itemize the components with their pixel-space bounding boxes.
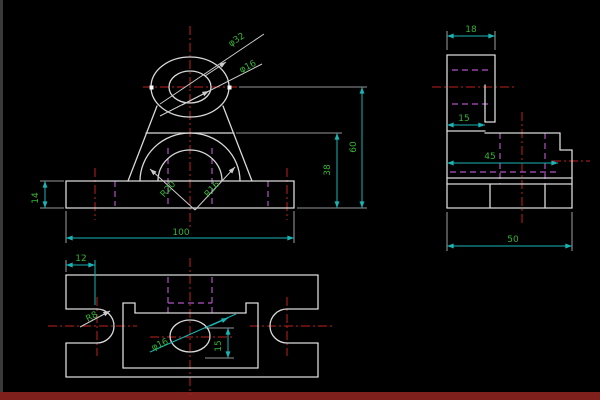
- cad-drawing-canvas: 14 100 60 38 R20 R16 φ32: [0, 0, 600, 400]
- dim-base-depth: 50: [507, 235, 519, 245]
- bottom-edge-strip: [0, 392, 600, 400]
- drawing-background: [0, 0, 600, 400]
- dim-arch-top-height: 38: [323, 164, 333, 176]
- grip-dot-left: [150, 86, 154, 90]
- dim-base-height: 14: [31, 192, 41, 204]
- dim-base-width: 100: [172, 228, 189, 238]
- dim-hole-offset: 15: [214, 340, 224, 351]
- dim-mid-depth: 45: [484, 152, 495, 162]
- cad-drawing: 14 100 60 38 R20 R16 φ32: [0, 0, 600, 400]
- left-edge-strip: [0, 0, 3, 400]
- dim-step-width: 15: [458, 114, 469, 124]
- dim-slot-center-offset: 12: [75, 254, 86, 264]
- grip-dot-right: [228, 86, 232, 90]
- dim-ear-thickness: 18: [465, 25, 477, 35]
- dim-hole-center-height: 60: [349, 141, 359, 153]
